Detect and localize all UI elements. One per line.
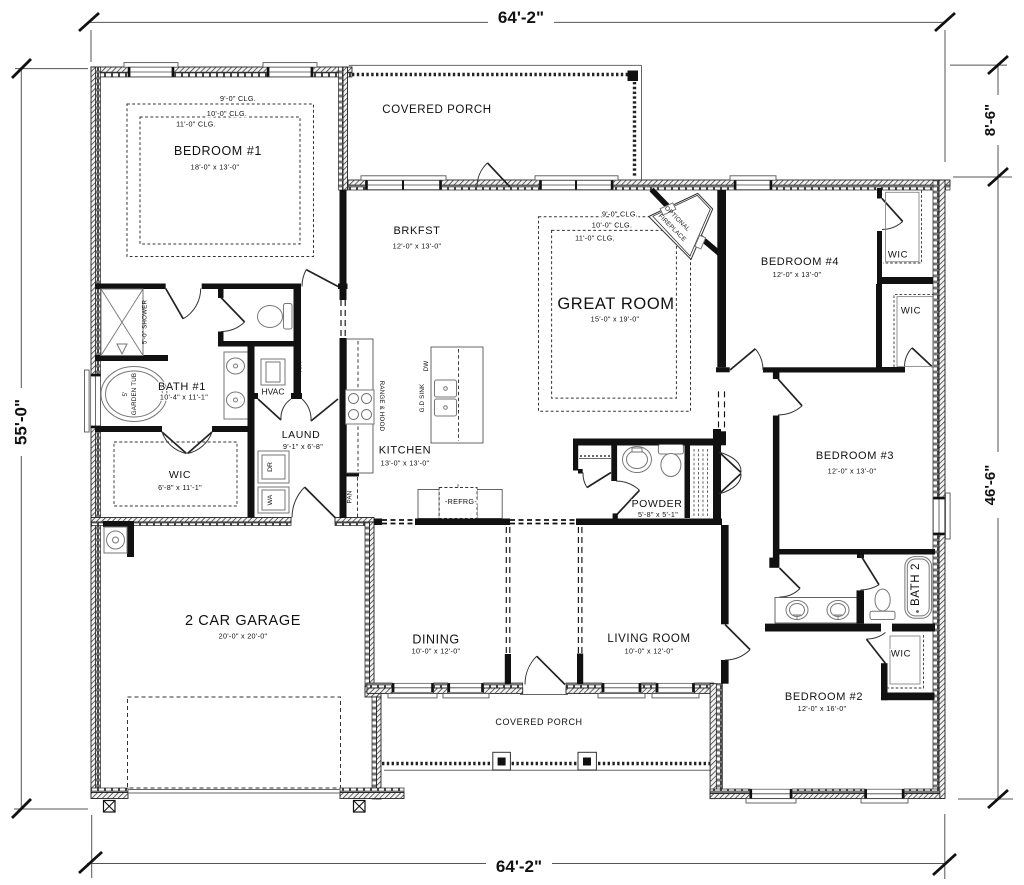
svg-text:WIC: WIC [169, 469, 191, 481]
svg-text:POWDER: POWDER [632, 498, 683, 510]
svg-text:18'-0" x 13'-0": 18'-0" x 13'-0" [191, 163, 240, 172]
svg-text:PAN: PAN [347, 491, 354, 504]
svg-text:G.D SINK: G.D SINK [419, 383, 426, 412]
svg-text:64'-2": 64'-2" [498, 8, 544, 27]
svg-text:LAUND: LAUND [282, 429, 321, 441]
svg-text:12'-0" x 16'-0": 12'-0" x 16'-0" [798, 704, 847, 713]
svg-text:R/A: R/A [297, 361, 304, 373]
svg-text:BEDROOM #2: BEDROOM #2 [785, 691, 863, 703]
svg-text:GREAT ROOM: GREAT ROOM [557, 295, 674, 313]
svg-text:DR: DR [267, 462, 274, 472]
svg-text:BRKFST: BRKFST [394, 225, 441, 237]
svg-text:55'-0": 55'-0" [11, 399, 30, 445]
svg-text:5'-0" SHOWER: 5'-0" SHOWER [142, 300, 149, 345]
svg-text:BATH #1: BATH #1 [158, 381, 206, 393]
svg-text:HVAC: HVAC [262, 387, 285, 397]
svg-text:12'-0" x 13'-0": 12'-0" x 13'-0" [828, 467, 877, 476]
svg-text:COVERED PORCH: COVERED PORCH [495, 717, 582, 727]
svg-text:64'-2": 64'-2" [496, 857, 542, 876]
svg-text:BEDROOM #1: BEDROOM #1 [174, 144, 262, 158]
svg-text:20'-0" x 20'-0": 20'-0" x 20'-0" [219, 632, 268, 641]
svg-text:10'-0" CLG.: 10'-0" CLG. [592, 221, 632, 230]
svg-text:-REFRG-: -REFRG- [445, 497, 477, 506]
svg-text:DW: DW [423, 361, 430, 372]
svg-text:WIC: WIC [891, 649, 911, 660]
svg-text:9'-1" x 6'-8": 9'-1" x 6'-8" [283, 442, 323, 451]
svg-text:9'-0" CLG.: 9'-0" CLG. [220, 94, 256, 103]
svg-text:5'-8" x 5'-1": 5'-8" x 5'-1" [638, 510, 678, 519]
svg-text:13'-0" x 13'-0": 13'-0" x 13'-0" [381, 459, 430, 468]
svg-text:LIVING ROOM: LIVING ROOM [607, 633, 690, 645]
svg-text:2 CAR GARAGE: 2 CAR GARAGE [185, 613, 301, 629]
svg-text:6'-8" x 11'-1": 6'-8" x 11'-1" [158, 483, 202, 492]
svg-text:WIC: WIC [888, 250, 908, 261]
svg-text:DINING: DINING [412, 633, 459, 647]
svg-text:11'-0" CLG.: 11'-0" CLG. [176, 120, 216, 129]
svg-text:10'-0" x 12'-0": 10'-0" x 12'-0" [625, 647, 674, 656]
svg-text:COVERED PORCH: COVERED PORCH [382, 104, 491, 116]
svg-text:12'-0" x 13'-0": 12'-0" x 13'-0" [773, 270, 822, 279]
svg-text:46'-6": 46'-6" [982, 465, 999, 506]
svg-text:WIC: WIC [901, 306, 921, 317]
svg-text:15'-0" x 19'-0": 15'-0" x 19'-0" [591, 315, 640, 324]
svg-text:BEDROOM #3: BEDROOM #3 [816, 450, 894, 462]
svg-text:9'-0" CLG.: 9'-0" CLG. [602, 210, 638, 219]
svg-text:10'-0" x 12'-0": 10'-0" x 12'-0" [412, 647, 461, 656]
svg-text:5': 5' [122, 391, 129, 396]
svg-text:BEDROOM #4: BEDROOM #4 [761, 256, 839, 268]
svg-text:12'-0" x 13'-0": 12'-0" x 13'-0" [393, 242, 442, 251]
svg-text:GARDEN TUB: GARDEN TUB [131, 373, 138, 415]
svg-text:KITCHEN: KITCHEN [379, 445, 431, 457]
svg-text:RANGE & HOOD: RANGE & HOOD [378, 381, 385, 432]
svg-text:8'-6": 8'-6" [982, 104, 999, 136]
svg-text:BATH 2: BATH 2 [910, 563, 922, 606]
svg-text:11'-0" CLG.: 11'-0" CLG. [575, 234, 615, 243]
svg-text:10'-0" CLG.: 10'-0" CLG. [207, 109, 247, 118]
svg-text:10'-4" x 11'-1": 10'-4" x 11'-1" [160, 393, 208, 402]
svg-text:WA: WA [267, 494, 274, 505]
